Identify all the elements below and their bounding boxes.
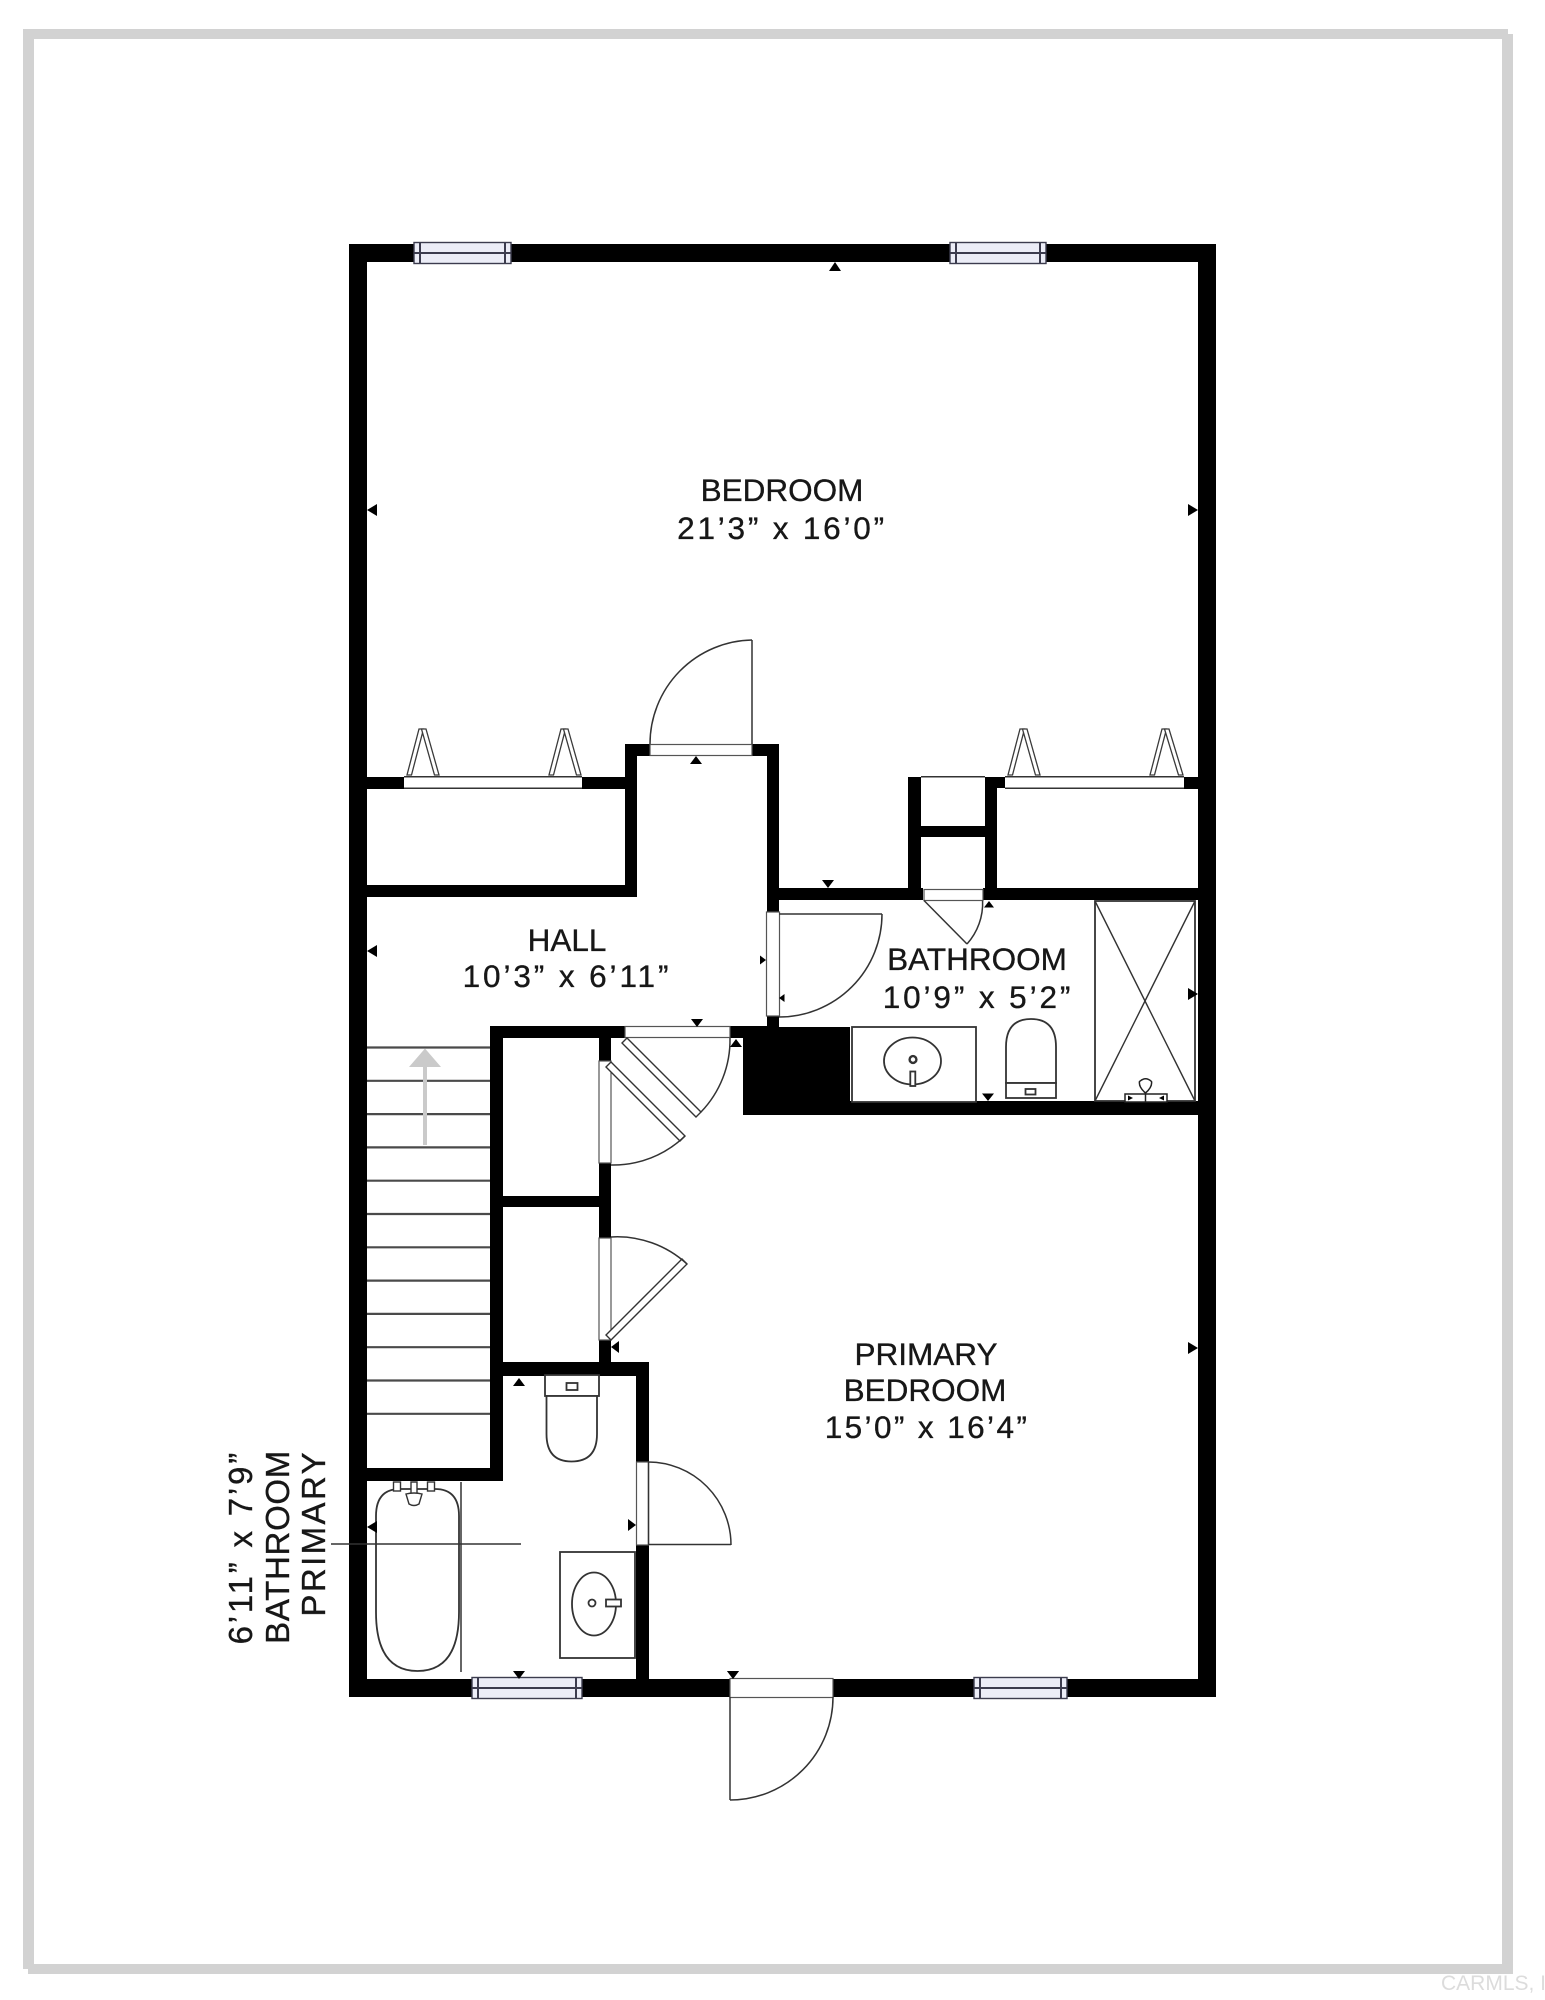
svg-text:HALL: HALL [528,922,607,958]
svg-text:BEDROOM: BEDROOM [701,472,864,508]
svg-text:21’3” x 16’0”: 21’3” x 16’0” [677,510,887,546]
svg-text:10’3” x 6’11”: 10’3” x 6’11” [463,958,672,994]
svg-text:CARMLS, INC: CARMLS, INC [1441,1972,1545,1995]
svg-text:BATHROOM: BATHROOM [259,1450,296,1644]
svg-text:PRIMARY: PRIMARY [295,1450,332,1617]
svg-text:PRIMARY: PRIMARY [855,1336,998,1372]
svg-text:10’9” x 5’2”: 10’9” x 5’2” [883,979,1074,1015]
svg-text:BEDROOM: BEDROOM [844,1372,1007,1408]
svg-text:15’0” x 16’4”: 15’0” x 16’4” [825,1409,1030,1445]
svg-text:6’11” x 7’9”: 6’11” x 7’9” [222,1450,259,1644]
svg-text:BATHROOM: BATHROOM [887,941,1067,977]
